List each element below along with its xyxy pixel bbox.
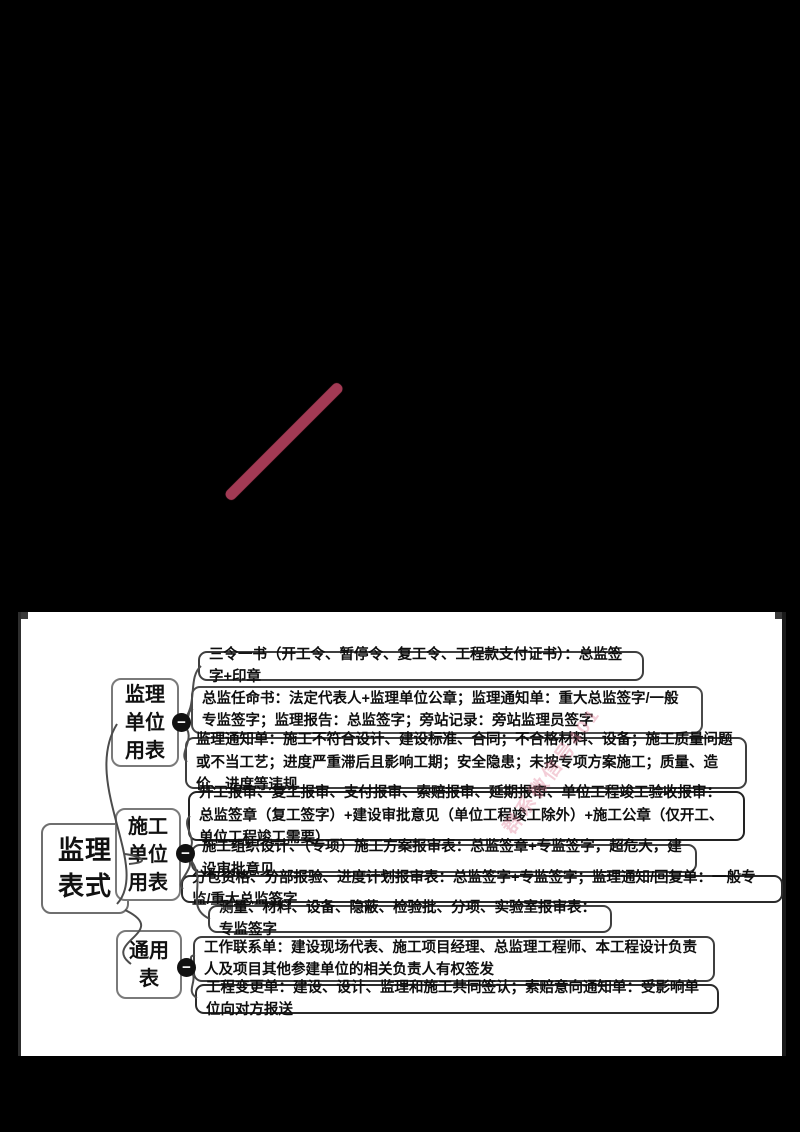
leaf-node-start-resume-payment-reports[interactable]: 开工报审、复工报审、支付报审、索赔报审、延期报审、单位工程竣工验收报审：总监签章… [188, 791, 745, 841]
collapse-icon[interactable]: − [176, 844, 195, 863]
branch-node-supervisor-unit-forms[interactable]: 监理 单位 用表 [111, 678, 179, 767]
leaf-node-work-contact-sheet[interactable]: 工作联系单：建设现场代表、施工项目经理、总监理工程师、本工程设计负责人及项目其他… [193, 936, 715, 982]
branch-node-general-forms[interactable]: 通用 表 [116, 930, 182, 999]
collapse-icon[interactable]: − [177, 958, 196, 977]
leaf-node-supervision-notice[interactable]: 监理通知单：施工不符合设计、建设标准、合同；不合格材料、设备；施工质量问题或不当… [185, 737, 747, 789]
leaf-node-measurement-materials[interactable]: 测量、材料、设备、隐蔽、检验批、分项、实验室报审表：专监签字 [208, 905, 612, 933]
collapse-icon[interactable]: − [172, 713, 191, 732]
leaf-node-chief-appointment[interactable]: 总监任命书：法定代表人+监理单位公章；监理通知单：重大总监签字/一般专监签字；监… [191, 686, 703, 734]
red-diagonal-stripe [224, 381, 345, 502]
panel-corner-mark [21, 612, 28, 619]
branch-node-contractor-unit-forms[interactable]: 施工 单位 用表 [115, 808, 181, 901]
panel-corner-mark [775, 612, 782, 619]
slide-panel: 群系微信号401 监理 表式 监理 单位 用表 施工 单位 用表 通用 表 − … [18, 612, 786, 1056]
leaf-node-three-orders-one-certificate[interactable]: 三令一书（开工令、暂停令、复工令、工程款支付证书）：总监签字+印章 [198, 651, 644, 681]
leaf-node-change-order[interactable]: 工程变更单：建设、设计、监理和施工共同签认；索赔意向通知单：受影响单位向对方报送 [195, 984, 719, 1014]
